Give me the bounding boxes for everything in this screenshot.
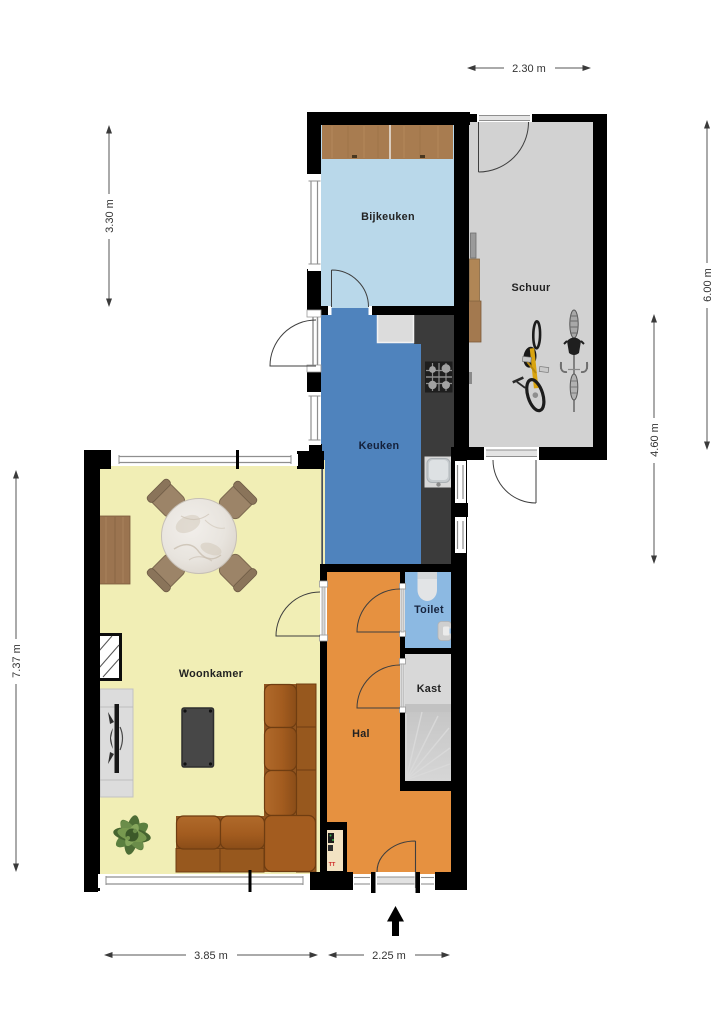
svg-text:3.30 m: 3.30 m: [104, 199, 116, 233]
svg-text:2.25 m: 2.25 m: [372, 950, 406, 962]
svg-text:3.85 m: 3.85 m: [194, 950, 228, 962]
svg-text:TT: TT: [329, 862, 336, 868]
svg-text:6.00 m: 6.00 m: [702, 268, 714, 302]
svg-text:Bijkeuken: Bijkeuken: [361, 211, 415, 223]
svg-text:7.37 m: 7.37 m: [11, 644, 23, 678]
svg-text:Hal: Hal: [352, 728, 370, 740]
svg-text:2.30 m: 2.30 m: [512, 63, 546, 75]
svg-text:4.60 m: 4.60 m: [649, 423, 661, 457]
svg-text:Schuur: Schuur: [512, 282, 551, 294]
svg-text:Woonkamer: Woonkamer: [179, 668, 244, 680]
svg-text:Toilet: Toilet: [414, 604, 444, 616]
svg-text:Keuken: Keuken: [359, 440, 400, 452]
svg-text:Kast: Kast: [417, 683, 442, 695]
